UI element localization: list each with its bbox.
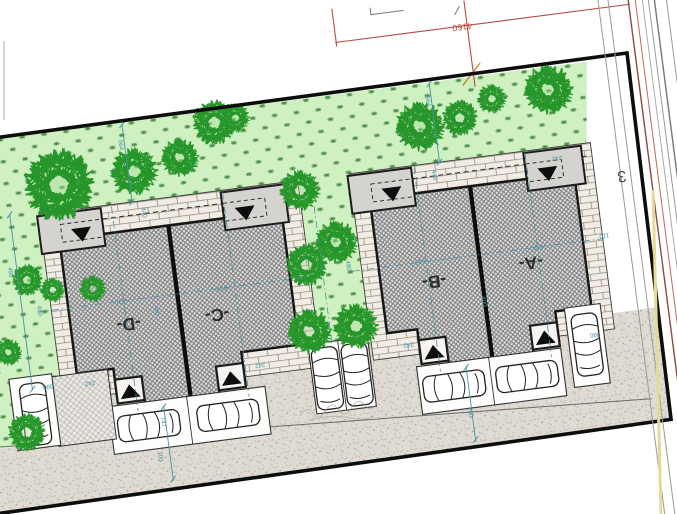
svg-text:390: 390 [42,382,54,390]
svg-text:4160: 4160 [452,21,473,33]
svg-text:200: 200 [466,407,474,419]
svg-text:110: 110 [598,231,609,239]
svg-text:490: 490 [6,267,14,279]
svg-text:-C-: -C- [204,303,231,326]
svg-text:-B-: -B- [421,270,448,293]
svg-text:610: 610 [216,284,228,292]
svg-text:242: 242 [254,361,266,369]
svg-text:480: 480 [344,260,352,272]
svg-text:400: 400 [152,305,160,317]
svg-text:242: 242 [403,340,415,348]
svg-text:440: 440 [139,207,147,219]
svg-text:610: 610 [532,243,544,251]
svg-text:564: 564 [423,96,431,108]
svg-text:242: 242 [551,154,563,162]
svg-text:242: 242 [84,379,96,387]
svg-text:747: 747 [159,416,167,428]
svg-text:440: 440 [430,169,438,181]
svg-text:610: 610 [114,297,126,305]
svg-text:480: 480 [35,305,43,317]
svg-text:-D-: -D- [115,313,142,336]
svg-text:100: 100 [156,451,164,463]
svg-text:610: 610 [414,257,426,265]
svg-text:564: 564 [116,139,124,151]
svg-text:390: 390 [589,330,601,338]
svg-text:400: 400 [480,296,488,308]
